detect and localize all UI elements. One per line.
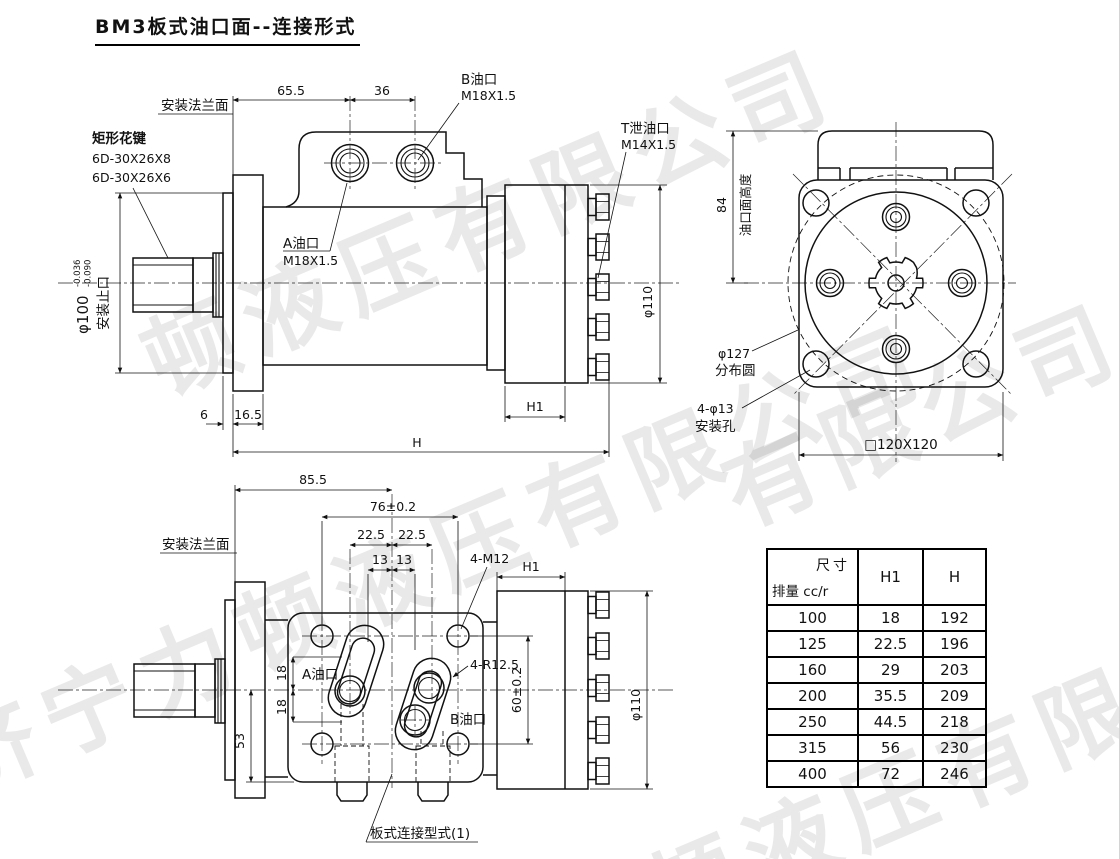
mount-holes-label: 安装孔 xyxy=(695,419,736,435)
rear-bolts-bottom xyxy=(588,592,609,784)
flange-face-label: 安装法兰面 xyxy=(161,98,229,114)
port-a-label: A油口 xyxy=(283,236,319,252)
table-row: 31556230 xyxy=(767,735,986,761)
spline-spec-2: 6D-30X26X6 xyxy=(92,170,171,185)
cell-h: 230 xyxy=(923,735,986,761)
dim-h: H xyxy=(412,435,421,450)
cell-h1: 22.5 xyxy=(858,631,923,657)
dim-76: 76±0.2 xyxy=(370,499,416,514)
cell-disp: 125 xyxy=(767,631,858,657)
cell-h: 246 xyxy=(923,761,986,787)
cell-h: 203 xyxy=(923,657,986,683)
spline-title: 矩形花键 xyxy=(92,130,146,147)
dim-84: 84 xyxy=(714,197,729,213)
cell-h1: 29 xyxy=(858,657,923,683)
cell-h1: 72 xyxy=(858,761,923,787)
cell-h1: 44.5 xyxy=(858,709,923,735)
square-size-label: □120X120 xyxy=(864,437,938,453)
bolt-circle-label: 分布圆 xyxy=(715,363,756,379)
port-face-height-label: 油口面高度 xyxy=(738,173,753,236)
cell-disp: 200 xyxy=(767,683,858,709)
cell-h: 218 xyxy=(923,709,986,735)
cell-h: 192 xyxy=(923,605,986,631)
cell-disp: 160 xyxy=(767,657,858,683)
dim-18-upper: 18 xyxy=(274,665,289,681)
port-t-thread: M14X1.5 xyxy=(621,137,676,152)
port-b-face-label: B油口 xyxy=(450,712,486,728)
table-header-h: H xyxy=(923,549,986,605)
dim-65-5: 65.5 xyxy=(277,83,305,98)
port-a-thread: M18X1.5 xyxy=(283,253,338,268)
drawing-canvas: 顿液压有限公司 济宁力顿液压有限公司 济宁力顿液压有限公司 有限公司 BM3板式… xyxy=(0,0,1119,859)
table-row: 16029203 xyxy=(767,657,986,683)
dim-18-lower: 18 xyxy=(274,699,289,715)
dim-60: 60±0.2 xyxy=(509,667,524,713)
side-view: 65.5 36 安装法兰面 矩形花键 6D-30X26X8 6D-30X26X6… xyxy=(58,72,682,457)
table-header-h1: H1 xyxy=(858,549,923,605)
dim-16-5: 16.5 xyxy=(234,407,262,422)
bolt-circle-dia: φ127 xyxy=(718,346,750,361)
dim-22-5-right: 22.5 xyxy=(398,527,426,542)
cell-disp: 315 xyxy=(767,735,858,761)
flange-face-label-bottom: 安装法兰面 xyxy=(162,537,230,553)
body-dia-bottom-label: φ110 xyxy=(628,689,643,721)
cell-h1: 35.5 xyxy=(858,683,923,709)
dim-85-5: 85.5 xyxy=(299,472,327,487)
spigot-label: 安装止口 xyxy=(96,276,112,330)
cell-disp: 250 xyxy=(767,709,858,735)
dim-13-left: 13 xyxy=(372,552,388,567)
dim-h1: H1 xyxy=(526,399,543,414)
flange-view: 84 油口面高度 φ127 分布圆 4-φ13 安装孔 □120X120 xyxy=(695,122,1016,462)
table-header-displacement: 排量 cc/r xyxy=(772,580,828,600)
dim-36: 36 xyxy=(374,83,390,98)
cell-h: 209 xyxy=(923,683,986,709)
dim-53: 53 xyxy=(232,733,247,749)
table-row: 40072246 xyxy=(767,761,986,787)
port-a-face-label: A油口 xyxy=(302,667,338,683)
table-header-size: 尺寸 xyxy=(816,555,850,575)
shaft-tol-upper: -0.036 xyxy=(73,260,83,287)
table-row: 20035.5209 xyxy=(767,683,986,709)
cell-h: 196 xyxy=(923,631,986,657)
body-dia-label: φ110 xyxy=(640,286,655,318)
table-row: 25044.5218 xyxy=(767,709,986,735)
cell-h1: 56 xyxy=(858,735,923,761)
port-t-label: T泄油口 xyxy=(620,121,670,137)
shaft-tol-lower: -0.090 xyxy=(84,260,94,287)
mount-thread-label: 4-M12 xyxy=(470,551,509,566)
port-b-label: B油口 xyxy=(461,72,497,88)
table-corner-cell: 尺寸 排量 cc/r xyxy=(767,549,858,605)
table-row: 10018192 xyxy=(767,605,986,631)
dim-6: 6 xyxy=(200,407,208,422)
shaft-dia-label: φ100 xyxy=(74,295,92,334)
spec-table: 尺寸 排量 cc/r H1 H 10018192 12522.5196 1602… xyxy=(766,548,987,788)
dim-13-right: 13 xyxy=(396,552,412,567)
dim-22-5-left: 22.5 xyxy=(357,527,385,542)
dim-h1-bottom: H1 xyxy=(522,559,539,574)
rear-bolts xyxy=(588,194,609,380)
spline-spec-1: 6D-30X26X8 xyxy=(92,151,171,166)
cell-h1: 18 xyxy=(858,605,923,631)
mount-holes-dia: 4-φ13 xyxy=(697,401,734,416)
connection-type-label: 板式连接型式(1) xyxy=(370,825,470,842)
cell-disp: 400 xyxy=(767,761,858,787)
cell-disp: 100 xyxy=(767,605,858,631)
port-face-view: 85.5 76±0.2 22.5 22.5 13 13 4-M12 4-R12.… xyxy=(58,472,676,842)
port-b-thread: M18X1.5 xyxy=(461,88,516,103)
table-row: 12522.5196 xyxy=(767,631,986,657)
